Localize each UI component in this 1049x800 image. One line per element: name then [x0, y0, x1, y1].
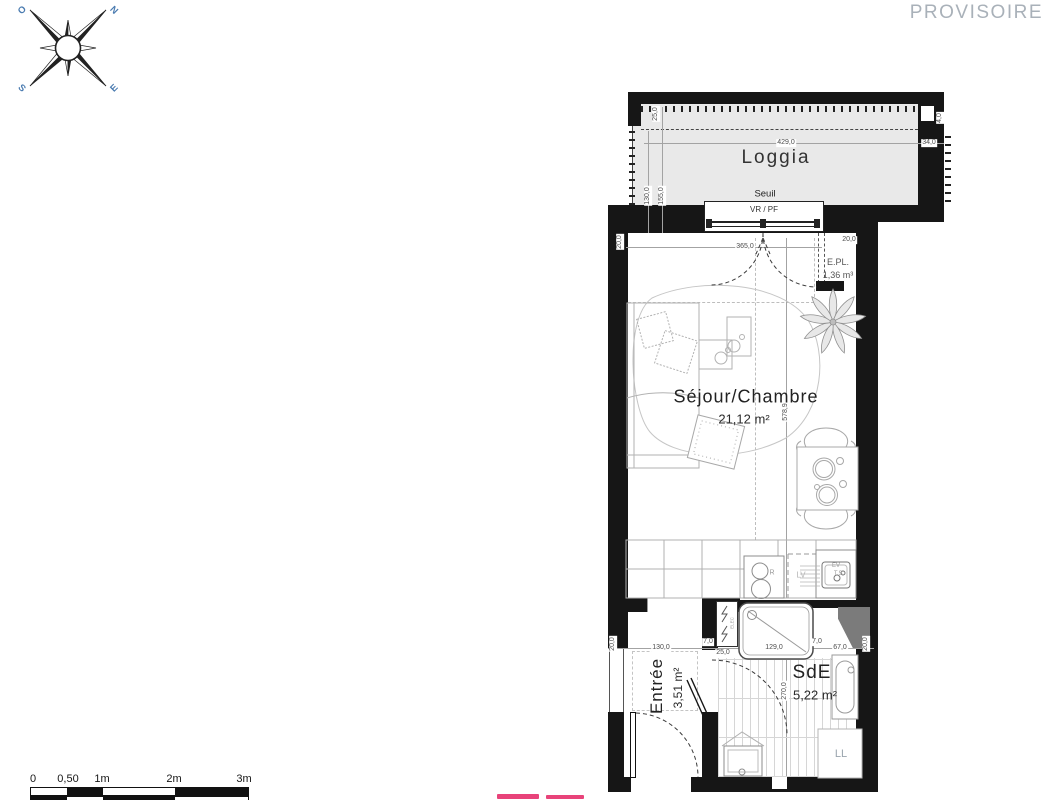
dim-label: 365,0 [735, 243, 755, 251]
entree-sde-wall-lower [702, 712, 718, 777]
sejour-label: Séjour/Chambre [673, 387, 818, 408]
scale-tick: 2m [166, 773, 181, 785]
dim-label: 129,0 [764, 644, 784, 652]
entrance-opening [631, 777, 691, 792]
loggia-wall-notch [921, 106, 934, 121]
dim-line [662, 107, 663, 233]
epl-volume: 1,36 m³ [823, 270, 854, 280]
cropped-red-annotation [497, 794, 539, 799]
sink-unit [800, 550, 856, 598]
dim-line [626, 247, 822, 248]
compass-north-label: N [107, 4, 120, 17]
dim-label: 34,0 [921, 139, 937, 147]
washer-label: LL [835, 748, 847, 760]
sink-ev-label: EV [832, 563, 840, 569]
floor-plan-canvas: PROVISOIRE O N S E [0, 0, 1049, 800]
epl-label: E.PL. [827, 257, 849, 267]
dim-label: 25,0 [652, 106, 660, 122]
loggia-left-wall-cap [628, 92, 641, 126]
sde-area: 5,22 m² [793, 688, 837, 703]
seuil-label: Seuil [754, 189, 775, 200]
sejour-entree-opening [647, 598, 704, 612]
dim-label: 7,0 [702, 638, 714, 646]
sejour-area: 21,12 m² [718, 412, 769, 427]
electrical-panel [716, 601, 738, 647]
fridge-label: R [769, 570, 774, 577]
scale-tick: 3m [236, 773, 251, 785]
sde-tiled-floor [718, 658, 854, 777]
loggia-label: Loggia [741, 147, 810, 169]
scale-tick: 1m [94, 773, 109, 785]
left-wall-hollow [609, 648, 624, 712]
bottom-wall-notch [772, 777, 787, 789]
kitchen-wall-right [737, 600, 856, 608]
compass-rose-icon: O N S E [5, 0, 135, 100]
compass-south-label: S [16, 82, 28, 94]
dim-label: 25,0 [715, 649, 731, 657]
dim-line [648, 131, 649, 233]
provisoire-watermark: PROVISOIRE [910, 2, 1043, 24]
left-wall-upper [608, 205, 628, 648]
window-jamb [706, 219, 712, 228]
scale-bar-row [30, 787, 249, 796]
sde-label: SdE [793, 662, 832, 684]
dim-label: 7,0 [811, 638, 823, 646]
loggia-railing-left [629, 126, 635, 205]
right-wall [856, 218, 878, 792]
epl-partition [818, 233, 819, 283]
dim-label: 20,0 [841, 236, 857, 244]
dim-label: 155,0 [658, 186, 666, 206]
dim-label: 130,0 [644, 186, 652, 206]
scale-bar-row2 [30, 796, 249, 800]
scale-tick: 0,50 [57, 773, 78, 785]
nightstand [699, 317, 751, 369]
window-jamb [814, 219, 820, 228]
window-mullion [760, 219, 766, 228]
dim-label: 20,0 [616, 234, 624, 250]
dim-label: 270,0 [781, 681, 789, 701]
dining-table [797, 428, 859, 529]
dishwasher-label: LV [796, 571, 805, 580]
loggia-top-wall [628, 92, 944, 104]
loggia-railing-right [945, 134, 951, 202]
kitchen-counter [626, 540, 856, 598]
kitchen-wall-left [626, 598, 647, 612]
rug [633, 285, 820, 454]
compass-west-label: O [16, 4, 29, 17]
compass-east-label: E [108, 82, 120, 94]
dim-label: 4,0 [936, 112, 944, 124]
loggia-dashed-line [641, 129, 918, 130]
vr-pf-label: VR / PF [705, 205, 823, 214]
dim-label: 67,0 [832, 644, 848, 652]
entree-area: 3,51 m² [671, 668, 685, 709]
cooktop-fridge-unit [744, 556, 784, 599]
scale-tick: 0 [30, 773, 36, 785]
loggia-railing [641, 106, 917, 112]
epl-bottom-stub [816, 281, 844, 291]
entrance-door-leaf [630, 712, 636, 778]
cropped-red-annotation [546, 795, 584, 799]
dim-label: 20,0 [862, 636, 870, 652]
elec-label: ELEC [730, 617, 735, 629]
dim-label: 130,0 [651, 644, 671, 652]
dim-label: 429,0 [776, 139, 796, 147]
bed [627, 303, 699, 468]
dim-label: 20,0 [609, 636, 617, 652]
sink-ts-label: T.S. [834, 571, 844, 577]
entree-label: Entrée [647, 658, 667, 714]
